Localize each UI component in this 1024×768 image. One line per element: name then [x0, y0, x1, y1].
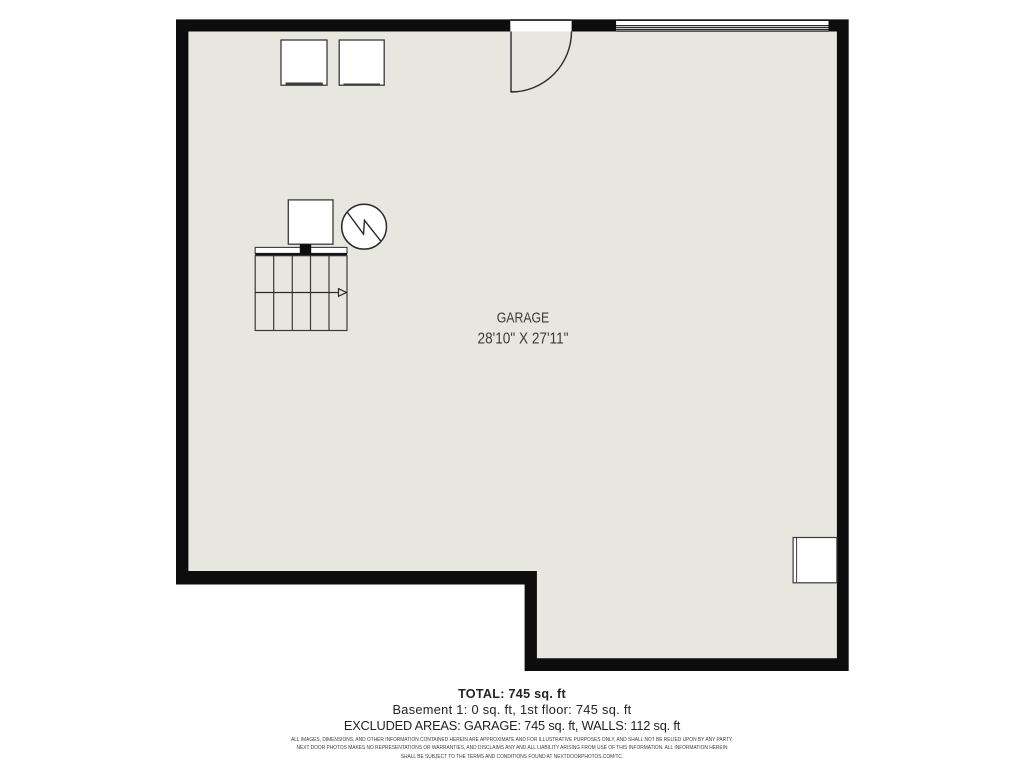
- svg-text:GARAGE: GARAGE: [497, 311, 550, 327]
- svg-text:28'10" X 27'11": 28'10" X 27'11": [478, 331, 569, 348]
